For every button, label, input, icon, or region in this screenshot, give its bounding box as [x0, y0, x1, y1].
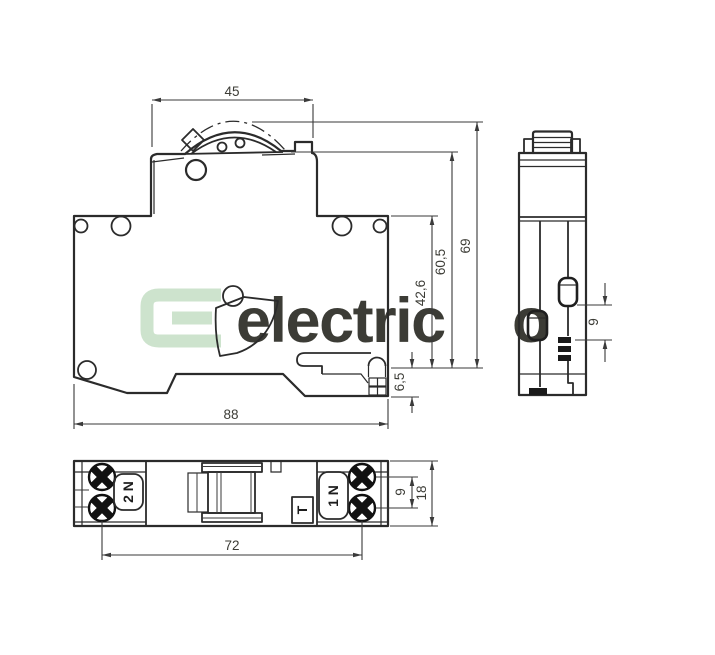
side-cap-lines — [519, 160, 586, 167]
dim-label-body-height: 42,6 — [413, 280, 428, 306]
shoulder-hole-right — [333, 217, 352, 236]
watermark-brand-accent: o — [512, 286, 549, 356]
front-ledge-inner-line — [152, 158, 184, 162]
dim-label-total-height: 69 — [458, 238, 473, 253]
terminal-screw-left-bottom — [89, 495, 115, 521]
dim-label-depth: 18 — [414, 485, 429, 500]
din-clip-slot — [297, 353, 371, 374]
side-body-outline — [519, 153, 586, 395]
side-button-upper — [559, 278, 577, 306]
dim-label-screw-pitch: 9 — [393, 488, 408, 496]
shoulder-hole-far-right — [374, 220, 387, 233]
din-clip-roller — [369, 358, 386, 367]
breaker-dimension-drawing: electric o — [0, 0, 715, 655]
bottom-right-strip-stubs — [375, 477, 381, 508]
din-clip-roller-sides — [369, 366, 386, 377]
side-bottom-contact — [529, 388, 547, 395]
dim-label-upper-height: 60,5 — [433, 249, 448, 275]
front-top-surface — [183, 152, 283, 154]
toggle-post-left — [524, 139, 533, 153]
dimension-6-5: 6,5 — [391, 352, 419, 413]
shoulder-hole-left — [112, 217, 131, 236]
terminal-screw-left-top — [89, 464, 115, 490]
front-surface-inner-right — [262, 154, 295, 155]
lever-dot-left — [218, 143, 227, 152]
side-rib-3 — [558, 355, 571, 361]
bottom-toggle-assembly — [188, 463, 262, 522]
terminal-label-left: 2 N — [120, 481, 136, 503]
bottom-view: 2 N 1 N T — [74, 461, 388, 526]
terminal-screw-right-top — [349, 464, 375, 490]
watermark: electric o — [147, 286, 549, 356]
side-channel-right — [568, 221, 573, 395]
technical-drawing-page: electric o — [0, 0, 715, 655]
lever-pivot-circle — [186, 160, 206, 180]
side-rib-1 — [558, 337, 571, 343]
front-body-outline — [74, 132, 388, 396]
dim-label-actuator-spacing: 9 — [586, 318, 601, 326]
toggle-handle-ribs — [534, 138, 571, 148]
shoulder-hole-far-left — [75, 220, 88, 233]
terminal-screw-right-bottom — [349, 495, 375, 521]
dim-label-rail-clearance: 6,5 — [392, 373, 407, 392]
din-clip-hook-line — [322, 374, 368, 383]
dim-label-total-width: 88 — [223, 407, 238, 422]
terminal-label-right: 1 N — [325, 485, 341, 507]
test-button-label: T — [294, 505, 310, 514]
lever-dot-right — [236, 139, 245, 148]
dimension-bottom-9: 9 — [376, 477, 418, 508]
dimension-side-9: 9 — [575, 283, 612, 362]
dim-label-lever-width: 45 — [224, 84, 239, 99]
dim-label-screw-spacing: 72 — [224, 538, 239, 553]
foot-hole — [78, 361, 96, 379]
bottom-top-tab — [271, 461, 281, 472]
side-rib-2 — [558, 346, 571, 352]
